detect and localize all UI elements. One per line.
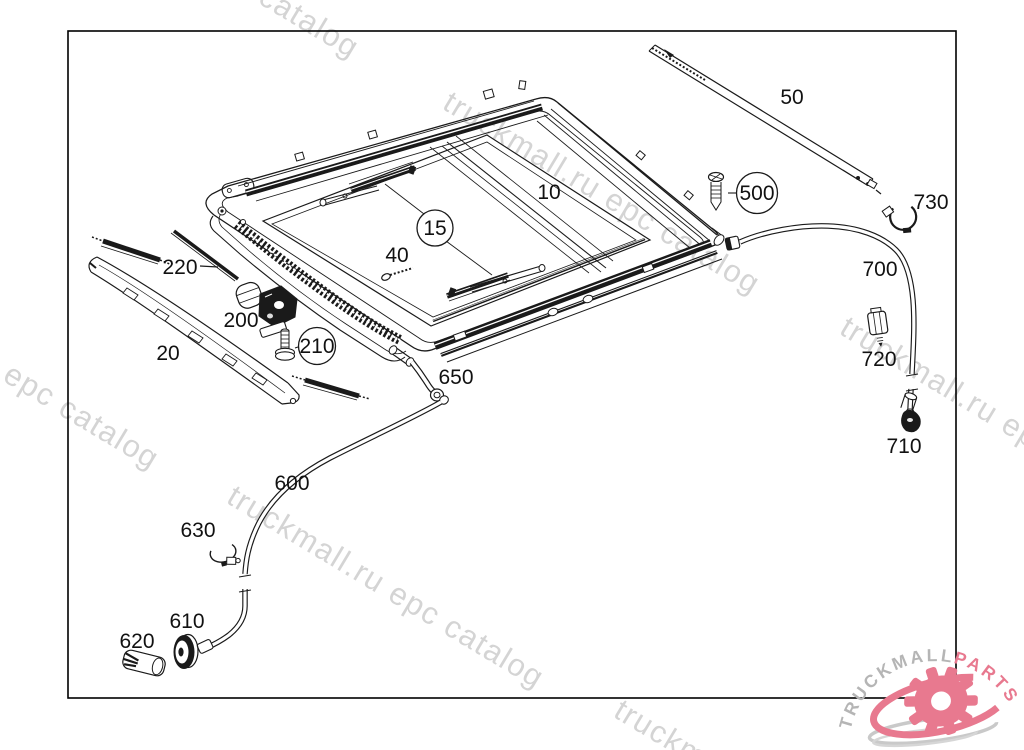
part-label-600: 600 xyxy=(274,472,309,495)
part-500-screw xyxy=(709,173,737,211)
parts-catalog-page: truckmall.ru epc catalog truckmall.ru ep… xyxy=(0,0,1024,750)
part-label-500: 500 xyxy=(739,182,774,205)
part-label-50: 50 xyxy=(780,86,803,109)
watermark-text: truckmall.ru epc catalog xyxy=(834,309,1024,526)
part-700-drain-hose xyxy=(725,226,918,413)
sunroof-parts-diagram: truckmall.ru epc catalog truckmall.ru ep… xyxy=(0,0,1024,750)
part-label-15: 15 xyxy=(423,217,446,240)
part-label-620: 620 xyxy=(119,630,154,653)
part-710-nozzle xyxy=(901,392,921,433)
part-50-roof-strip xyxy=(649,45,881,194)
watermark-text: truckmall.ru epc catalog xyxy=(36,0,365,65)
part-label-210: 210 xyxy=(299,335,334,358)
part-label-10: 10 xyxy=(537,181,560,204)
part-label-650: 650 xyxy=(438,366,473,389)
part-label-700: 700 xyxy=(862,258,897,281)
part-label-730: 730 xyxy=(913,191,948,214)
truckmall-logo: TRUCKMALL PARTS xyxy=(835,645,1024,749)
part-210-bolt xyxy=(276,329,299,360)
part-label-20: 20 xyxy=(156,342,179,365)
part-label-710: 710 xyxy=(886,435,921,458)
watermark-text: truckmall.ru epc catalog xyxy=(221,478,550,695)
part-label-610: 610 xyxy=(169,610,204,633)
part-label-720: 720 xyxy=(861,348,896,371)
part-label-630: 630 xyxy=(180,519,215,542)
part-40-screw xyxy=(381,268,413,282)
part-label-40: 40 xyxy=(385,244,408,267)
watermark-text: truckmall.ru epc catalog xyxy=(0,259,166,476)
leader-210 xyxy=(295,347,298,348)
part-650-drain-elbow xyxy=(388,344,444,401)
part-label-220: 220 xyxy=(162,256,197,279)
part-610-grommet xyxy=(174,635,199,670)
part-630-clamp xyxy=(209,544,241,570)
part-label-200: 200 xyxy=(223,309,258,332)
